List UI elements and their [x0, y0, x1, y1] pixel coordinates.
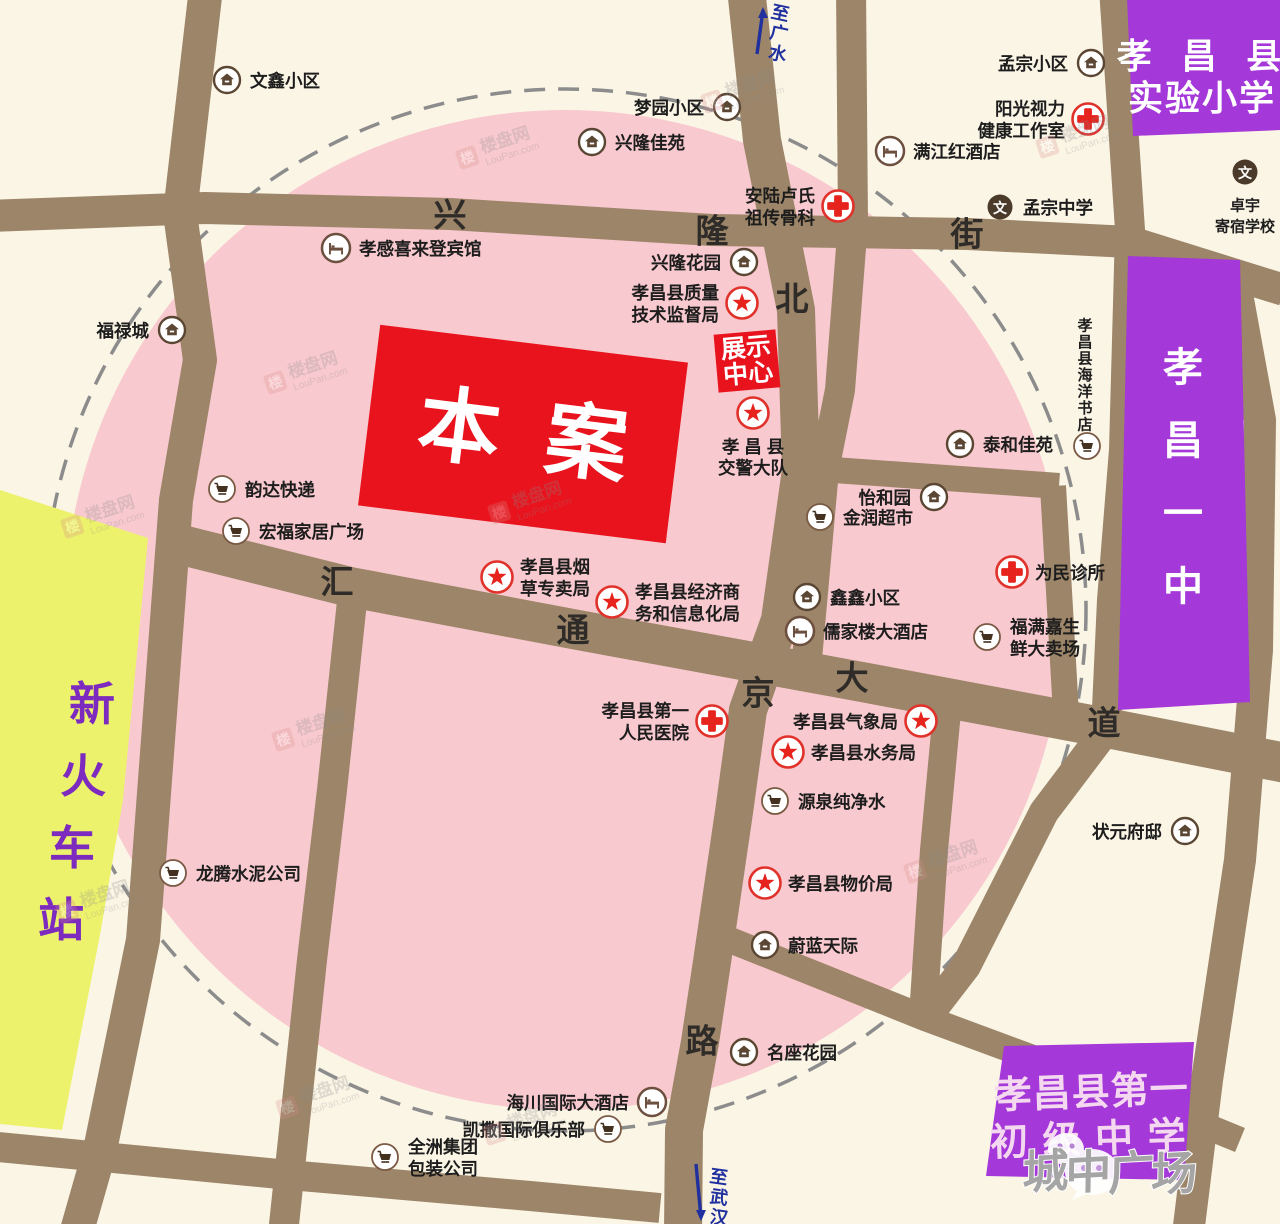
- residence-icon: [579, 129, 605, 155]
- map-text: 洋: [1077, 383, 1092, 401]
- residence-icon: [947, 431, 973, 457]
- residence-icon: [214, 67, 240, 93]
- map-text: 安陆卢氏: [745, 186, 815, 206]
- map-text: 文鑫小区: [250, 71, 320, 91]
- shop-icon: [160, 860, 186, 886]
- gov-star-icon: [738, 398, 769, 429]
- poi-孟宗中学: 文孟宗中学: [988, 195, 1094, 220]
- poi-龙腾水泥公司: 龙腾水泥公司: [160, 860, 301, 886]
- poi-怡和园: 怡和园: [859, 484, 948, 510]
- map-text: 孝昌县经济商: [635, 582, 740, 602]
- map-text: 状元府邸: [1092, 822, 1162, 842]
- brand-text: 城中广场: [1022, 1138, 1198, 1208]
- poi-韵达快递: 韵达快递: [209, 476, 315, 502]
- road-name-char: 汇: [321, 564, 354, 601]
- school-wen-icon: 文: [1233, 160, 1258, 185]
- map-text: 兴隆花园: [651, 253, 721, 273]
- hospital-cross-icon: [697, 706, 728, 737]
- poi-兴隆花园: 兴隆花园: [651, 249, 757, 275]
- poi-儒家楼大酒店: 儒家楼大酒店: [786, 617, 928, 645]
- map-text: 县: [1077, 351, 1092, 368]
- poi-鑫鑫小区: 鑫鑫小区: [794, 584, 900, 610]
- map-text: 为民诊所: [1035, 563, 1105, 583]
- map-text: 兴隆佳苑: [615, 133, 685, 153]
- map-text: 孝昌县第一: [602, 701, 690, 721]
- school-wen-icon: 文: [988, 195, 1013, 220]
- station-label-char: 车: [49, 822, 95, 874]
- map-text: 泰和佳苑: [982, 435, 1053, 455]
- map-text: 中心: [722, 358, 774, 390]
- gov-star-icon: [597, 587, 628, 618]
- shop-icon: [807, 504, 833, 530]
- poi-金润超市: 金润超市: [807, 504, 913, 530]
- poi-名座花园: 名座花园: [731, 1039, 837, 1065]
- station-label-char: 火: [60, 750, 106, 802]
- map-text: 一: [1163, 492, 1203, 536]
- map-text: 武: [709, 1186, 730, 1208]
- gov-star-icon: [906, 706, 937, 737]
- poi-梦园小区: 梦园小区: [634, 94, 740, 120]
- map-text: 源泉纯净水: [798, 792, 886, 812]
- map-canvas: 孝 昌 县实验小学孝昌一中孝昌县第一初 级 中 学新火车站本案展示中心兴隆街北京…: [0, 0, 1280, 1224]
- hotel-icon: [638, 1088, 666, 1116]
- map-text: 实验小学: [1128, 79, 1276, 119]
- map-text: 卓宇: [1230, 197, 1260, 215]
- hospital-cross-icon: [823, 191, 854, 222]
- poi-满江红酒店: 满江红酒店: [876, 137, 1001, 165]
- map-text: 本: [413, 378, 505, 478]
- gov-star-icon: [773, 737, 804, 768]
- map-text: 韵达快递: [245, 480, 315, 500]
- map-text: 交警大队: [718, 458, 788, 478]
- road-name-char: 通: [557, 612, 590, 649]
- display-center-marker: 展示中心: [714, 329, 781, 392]
- road-name-char: 道: [1088, 705, 1121, 742]
- poi-泰和佳苑: 泰和佳苑: [947, 431, 1053, 457]
- map-text: 名座花园: [767, 1043, 837, 1063]
- gov-star-icon: [750, 868, 781, 899]
- map-text: 草专卖局: [520, 579, 590, 599]
- poi-兴隆佳苑: 兴隆佳苑: [579, 129, 685, 155]
- map-text: 鑫鑫小区: [829, 588, 900, 608]
- map-text: 福禄城: [96, 321, 150, 341]
- map-text: 孝昌县物价局: [788, 874, 893, 894]
- map-text: 昌: [1163, 419, 1203, 463]
- residence-icon: [731, 1039, 757, 1065]
- hospital-cross-icon: [997, 557, 1028, 588]
- map-text: 汉: [709, 1206, 731, 1224]
- road-name-char: 兴: [434, 197, 467, 234]
- map-text: 店: [1077, 416, 1092, 434]
- svg-text:文: 文: [1238, 165, 1253, 181]
- shop-icon: [223, 518, 249, 544]
- map-text: 书: [1077, 399, 1092, 417]
- road-name-char: 京: [742, 675, 775, 712]
- map-text: 孝昌县气象局: [793, 712, 898, 732]
- road-jinrun-south: [1053, 486, 1066, 714]
- map-text: 孝昌县水务局: [811, 743, 916, 763]
- map-text: 昌: [1077, 334, 1092, 351]
- road-name-char: 北: [776, 281, 809, 318]
- map-text: 孝昌县质量: [632, 283, 720, 303]
- map-text: 包装公司: [408, 1159, 478, 1179]
- residence-icon: [1172, 818, 1198, 844]
- map-text: 孟宗小区: [998, 54, 1068, 74]
- map-text: 海: [1077, 366, 1092, 384]
- poi-文鑫小区: 文鑫小区: [214, 67, 320, 93]
- poi-孟宗小区: 孟宗小区: [998, 50, 1104, 76]
- hotel-icon: [322, 234, 350, 262]
- map-text: 孝: [1076, 318, 1092, 335]
- shop-icon: [372, 1144, 398, 1170]
- poi-宏福家居广场: 宏福家居广场: [223, 518, 364, 544]
- map-text: 孝 昌 县: [722, 437, 784, 457]
- map-text: 梦园小区: [634, 98, 704, 118]
- map-text: 孝感喜来登宾馆: [359, 239, 482, 259]
- map-text: 人民医院: [619, 723, 689, 743]
- map-text: 全洲集团: [407, 1137, 478, 1157]
- location-map: 孝 昌 县实验小学孝昌一中孝昌县第一初 级 中 学新火车站本案展示中心兴隆街北京…: [0, 0, 1280, 1224]
- map-text: 孟宗中学: [1023, 198, 1093, 218]
- poi-孝感喜来登宾馆: 孝感喜来登宾馆: [322, 234, 482, 262]
- poi-蔚蓝天际: 蔚蓝天际: [752, 932, 858, 958]
- map-text: 怡和园: [859, 488, 912, 508]
- map-text: 城: [1022, 1144, 1069, 1198]
- map-text: 中: [1163, 565, 1203, 609]
- shop-icon: [762, 788, 788, 814]
- station-label-char: 新: [69, 678, 115, 730]
- poi-状元府邸: 状元府邸: [1092, 818, 1198, 844]
- map-text: 至: [708, 1166, 729, 1188]
- shop-icon: [595, 1116, 621, 1142]
- map-text: 阳光视力: [995, 99, 1065, 119]
- map-text: 金润超市: [842, 508, 913, 528]
- shop-icon: [209, 476, 235, 502]
- map-text: 孝: [1163, 346, 1203, 390]
- road-name-char: 隆: [696, 213, 730, 250]
- road-name-char: 大: [836, 660, 869, 697]
- no1-middle-school-zone: [1118, 256, 1250, 710]
- gov-star-icon: [482, 562, 513, 593]
- residence-icon: [1078, 50, 1104, 76]
- shop-icon: [974, 624, 1000, 650]
- map-text: 儒家楼大酒店: [823, 622, 928, 642]
- residence-icon: [159, 317, 185, 343]
- gov-star-icon: [727, 288, 758, 319]
- residence-icon: [731, 249, 757, 275]
- map-text: 技术监督局: [632, 305, 720, 325]
- map-text: 广: [1108, 1146, 1155, 1200]
- map-text: 蔚蓝天际: [788, 936, 858, 956]
- poi-福禄城: 福禄城: [96, 317, 186, 343]
- residence-icon: [752, 932, 778, 958]
- map-text: 孝 昌 县: [1117, 38, 1280, 77]
- map-text: 寄宿学校: [1215, 218, 1276, 236]
- shop-icon: [1074, 433, 1100, 459]
- svg-text:文: 文: [993, 200, 1008, 216]
- map-text: 宏福家居广场: [259, 522, 364, 542]
- map-text: 祖传骨科: [744, 208, 815, 228]
- map-text: 福满嘉生: [1009, 617, 1080, 637]
- map-text: 中: [1065, 1145, 1112, 1199]
- residence-icon: [794, 584, 820, 610]
- road-name-char: 街: [950, 216, 984, 253]
- map-text: 鲜大卖场: [1010, 639, 1080, 659]
- hotel-icon: [876, 137, 904, 165]
- map-text: 龙腾水泥公司: [196, 864, 301, 884]
- map-text: 满江红酒店: [913, 142, 1001, 162]
- hotel-icon: [786, 617, 814, 645]
- residence-icon: [921, 484, 947, 510]
- map-text: 孝昌县烟: [520, 557, 590, 577]
- map-text: 务和信息化局: [635, 604, 740, 624]
- map-text: 场: [1151, 1147, 1198, 1201]
- road-name-char: 路: [686, 1023, 720, 1060]
- map-text: 孝昌县第一: [993, 1069, 1189, 1118]
- poi-源泉纯净水: 源泉纯净水: [762, 788, 886, 814]
